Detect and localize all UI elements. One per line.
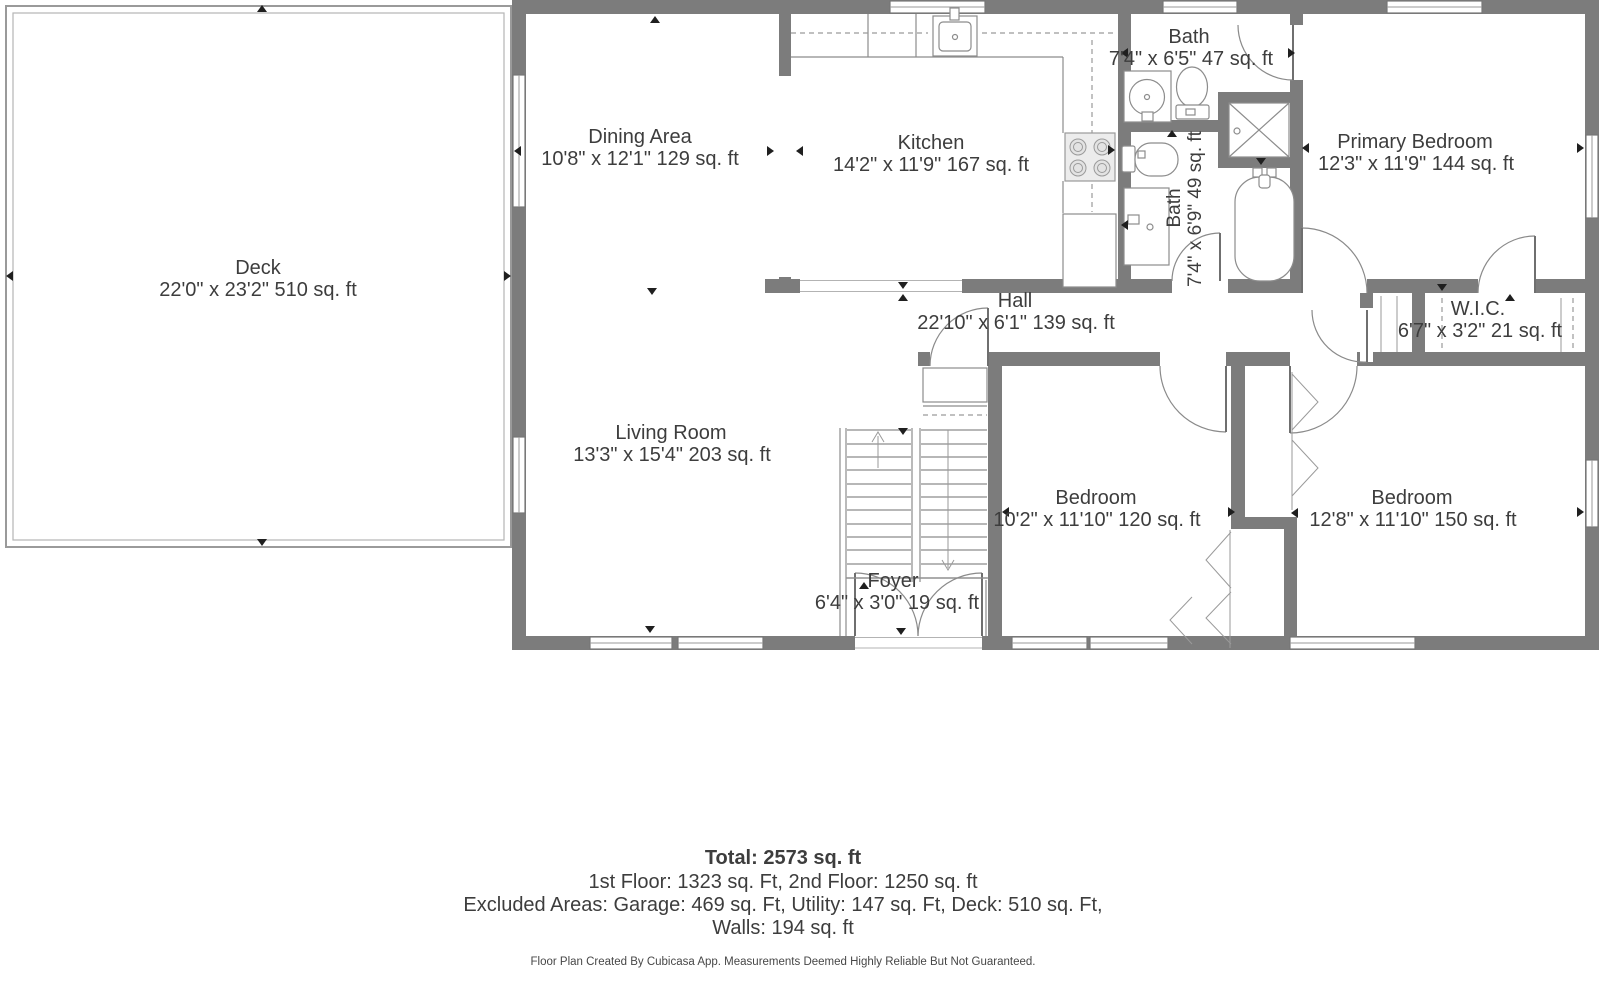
window-living-bottom-1 [590,637,672,649]
room-label-hall: Hall 22'10" x 6'1" 139 sq. ft [917,290,1115,334]
room-dims: 7'4" x 6'9" 49 sq. ft [1185,130,1206,287]
floors-area-text: 1st Floor: 1323 sq. Ft, 2nd Floor: 1250 … [588,871,978,893]
window-dining-left [513,75,525,207]
bathtub-icon [1235,168,1294,281]
room-dims: 13'3" x 15'4" 203 sq. ft [573,444,771,466]
room-dims: 6'7" x 3'2" 21 sq. ft [1398,320,1563,342]
window-primary-top [1387,1,1482,13]
stair-up-arrow-icon [872,432,884,468]
bathroom-sink-icon [1124,188,1169,265]
total-area-text: Total: 2573 sq. ft [705,847,862,869]
hall-closet-shelving [1381,296,1397,352]
room-dims: 14'2" x 11'9" 167 sq. ft [833,154,1029,176]
window-kitchen-top [890,1,985,13]
door-bedroom-mid [1160,366,1226,432]
room-dims: 7'4" x 6'5" 47 sq. ft [1109,48,1274,70]
stair-down-arrow-icon [942,430,954,570]
room-label-dining-area: Dining Area 10'8" x 12'1" 129 sq. ft [541,126,739,170]
room-name: Deck [235,257,282,279]
room-name: Foyer [867,570,918,592]
window-living-bottom-2 [678,637,763,649]
walls-area-text: Walls: 194 sq. ft [712,917,854,939]
bathroom-sink-icon [1124,71,1171,122]
toilet-icon [1122,143,1178,176]
room-label-deck: Deck 22'0" x 23'2" 510 sq. ft [159,257,357,301]
room-dims: 10'2" x 11'10" 120 sq. ft [993,509,1201,531]
room-name: Bedroom [1371,487,1452,509]
room-label-bedroom-right: Bedroom 12'8" x 11'10" 150 sq. ft [1309,487,1517,531]
room-labels: Deck 22'0" x 23'2" 510 sq. ft Dining Are… [159,26,1562,614]
floor-plan-canvas: Deck 22'0" x 23'2" 510 sq. ft Dining Are… [0,0,1599,986]
stove-icon [1065,133,1115,181]
toilet-icon [1176,67,1209,119]
room-dims: 12'3" x 11'9" 144 sq. ft [1318,153,1514,175]
window-bath-top [1163,1,1237,13]
room-dims: 12'8" x 11'10" 150 sq. ft [1309,509,1517,531]
window-primary-right [1586,135,1598,218]
room-label-living-room: Living Room 13'3" x 15'4" 203 sq. ft [573,422,771,466]
stair-treads [847,430,987,578]
room-name: Hall [998,290,1032,312]
room-label-primary-bedroom: Primary Bedroom 12'3" x 11'9" 144 sq. ft [1318,131,1514,175]
room-dims: 6'4" x 3'0" 19 sq. ft [815,592,980,614]
window-bedroom-right-side [1586,460,1598,527]
room-dims: 22'0" x 23'2" 510 sq. ft [159,279,357,301]
window-bedroom-mid-2 [1090,637,1168,649]
kitchen-sink-icon [933,8,977,56]
bath-upper-fixtures [1124,67,1209,122]
excluded-area-text: Excluded Areas: Garage: 469 sq. Ft, Util… [463,894,1102,916]
room-dims: 10'8" x 12'1" 129 sq. ft [541,148,739,170]
shower-icon [1229,103,1289,157]
window-bedroom-right-bottom [1290,637,1415,649]
window-bedroom-mid-1 [1012,637,1087,649]
room-name: Kitchen [898,132,965,154]
door-bedroom-right [1290,366,1357,433]
room-name: Bath [1168,26,1209,48]
room-label-bath-upper: Bath 7'4" x 6'5" 47 sq. ft [1109,26,1274,70]
area-summary: Total: 2573 sq. ft 1st Floor: 1323 sq. F… [463,847,1102,968]
refrigerator-icon [1063,214,1116,287]
room-name: Living Room [615,422,726,444]
room-label-kitchen: Kitchen 14'2" x 11'9" 167 sq. ft [833,132,1029,176]
room-name: Bath [1164,188,1185,227]
disclaimer-text: Floor Plan Created By Cubicasa App. Meas… [531,956,1036,968]
stair-landing [923,368,987,415]
room-name: Dining Area [588,126,692,148]
room-name: Primary Bedroom [1337,131,1493,153]
room-name: W.I.C. [1451,298,1505,320]
window-living-left [513,437,525,513]
room-dims: 22'10" x 6'1" 139 sq. ft [917,312,1115,334]
room-name: Bedroom [1055,487,1136,509]
room-label-bedroom-mid: Bedroom 10'2" x 11'10" 120 sq. ft [993,487,1201,531]
